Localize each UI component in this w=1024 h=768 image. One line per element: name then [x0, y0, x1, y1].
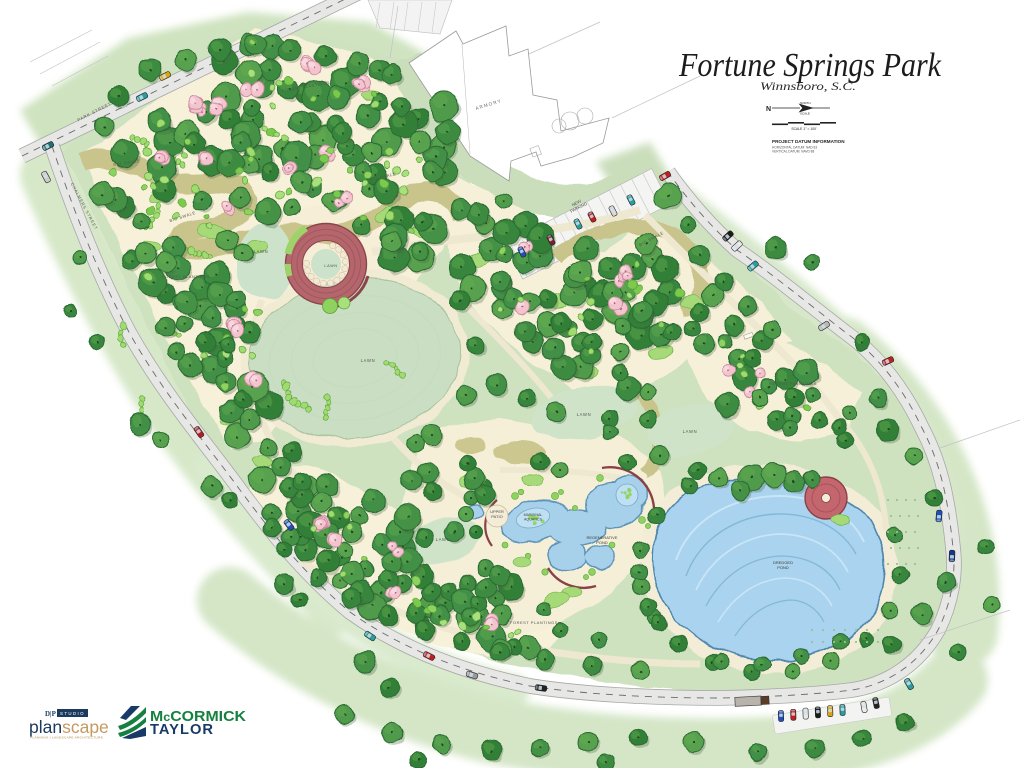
svg-text:MARGINAL: MARGINAL: [524, 513, 543, 517]
svg-text:PATIO: PATIO: [491, 514, 502, 519]
svg-text:PROJECT DATUM INFORMATION: PROJECT DATUM INFORMATION: [772, 139, 845, 144]
svg-text:Winnsboro, S.C.: Winnsboro, S.C.: [760, 79, 856, 93]
svg-text:NORTH: NORTH: [800, 101, 811, 105]
svg-text:TAYLOR: TAYLOR: [150, 722, 214, 738]
svg-text:SCALE: SCALE: [800, 112, 810, 116]
svg-text:AQUATICS: AQUATICS: [524, 518, 543, 522]
svg-text:LAWN: LAWN: [361, 358, 376, 363]
svg-text:LAWN: LAWN: [324, 264, 337, 268]
svg-text:LAWN: LAWN: [254, 249, 269, 254]
svg-text:LAWN: LAWN: [683, 429, 698, 434]
svg-text:LAWN: LAWN: [436, 537, 451, 542]
svg-text:planscape: planscape: [29, 717, 109, 737]
svg-text:PLANNING | LANDSCAPE ARCHITECT: PLANNING | LANDSCAPE ARCHITECTURE: [30, 736, 103, 740]
svg-text:VERTICAL DATUM: NAVD 88: VERTICAL DATUM: NAVD 88: [772, 150, 814, 154]
svg-text:POND: POND: [596, 540, 608, 545]
svg-text:N: N: [766, 106, 771, 113]
svg-text:FOREST PLANTINGS: FOREST PLANTINGS: [510, 620, 558, 625]
svg-text:SCALE 1" = 100': SCALE 1" = 100': [791, 127, 817, 131]
svg-text:LAWN: LAWN: [577, 412, 592, 417]
svg-text:FOREST PLANTINGS: FOREST PLANTINGS: [162, 274, 210, 279]
svg-text:POND: POND: [777, 565, 789, 570]
svg-text:STUDIO: STUDIO: [60, 711, 85, 716]
svg-text:FOREST PLANTINGS: FOREST PLANTINGS: [769, 381, 817, 386]
